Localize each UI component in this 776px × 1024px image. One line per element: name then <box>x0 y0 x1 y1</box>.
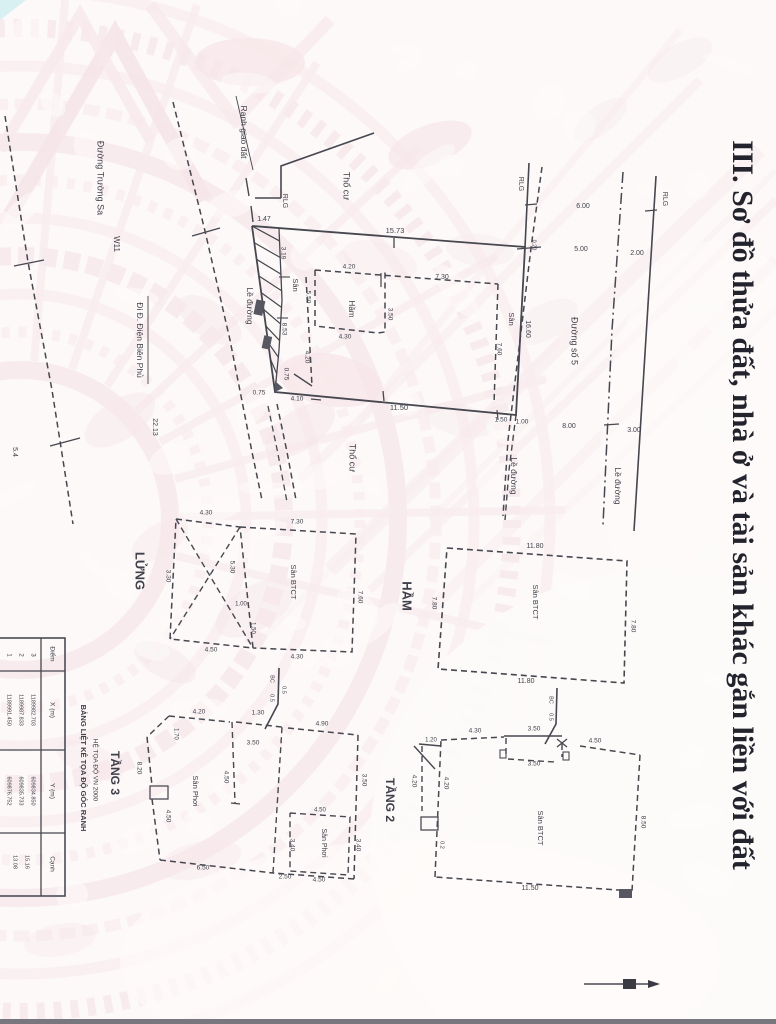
svg-text:Đường Trường Sa: Đường Trường Sa <box>96 141 106 215</box>
svg-text:RLG: RLG <box>661 192 668 206</box>
svg-text:4.50: 4.50 <box>222 771 229 784</box>
svg-text:1.00: 1.00 <box>235 602 247 608</box>
svg-text:X (m): X (m) <box>48 702 55 718</box>
svg-text:1.00: 1.00 <box>516 419 529 426</box>
svg-text:3.40: 3.40 <box>288 839 295 852</box>
svg-text:609876.752: 609876.752 <box>6 776 12 805</box>
svg-text:0.5: 0.5 <box>269 694 275 702</box>
svg-text:1189987.833: 1189987.833 <box>18 694 24 726</box>
svg-text:TẦNG 2: TẦNG 2 <box>383 778 398 822</box>
svg-text:16.60: 16.60 <box>524 320 531 338</box>
svg-text:8.20: 8.20 <box>135 762 142 775</box>
svg-text:4.30: 4.30 <box>469 728 482 735</box>
svg-text:Đi Đ. Điện Biên Phủ: Đi Đ. Điện Biên Phủ <box>135 302 145 378</box>
svg-text:4.30: 4.30 <box>200 510 213 517</box>
svg-text:3.40: 3.40 <box>354 839 361 852</box>
svg-text:11.50: 11.50 <box>522 885 539 892</box>
svg-text:Sân: Sân <box>507 312 516 325</box>
svg-text:3.30: 3.30 <box>164 570 171 583</box>
svg-text:7.80: 7.80 <box>629 620 636 633</box>
svg-text:8.53: 8.53 <box>280 323 287 336</box>
svg-text:1.47: 1.47 <box>257 216 271 223</box>
svg-text:4.50: 4.50 <box>314 808 326 814</box>
svg-text:Sân BTCT: Sân BTCT <box>531 584 540 619</box>
svg-text:Đường số 5: Đường số 5 <box>570 317 580 365</box>
svg-text:W11: W11 <box>112 236 121 252</box>
svg-text:HỆ TỌA ĐỘ VN 2000: HỆ TỌA ĐỘ VN 2000 <box>91 739 100 802</box>
svg-text:HẦM: HẦM <box>400 581 415 611</box>
svg-text:4.10: 4.10 <box>291 396 304 403</box>
svg-text:7.80: 7.80 <box>430 597 437 610</box>
svg-text:Thổ cư: Thổ cư <box>342 172 352 201</box>
svg-text:0.5: 0.5 <box>281 686 287 694</box>
svg-text:7.30: 7.30 <box>291 519 304 526</box>
svg-text:2.50: 2.50 <box>279 874 292 881</box>
svg-text:Lề đường: Lề đường <box>509 457 519 495</box>
svg-text:7.60: 7.60 <box>495 343 502 356</box>
svg-text:Sân: Sân <box>291 278 300 291</box>
svg-text:8.00: 8.00 <box>562 423 576 430</box>
svg-text:Thổ cư: Thổ cư <box>348 444 358 473</box>
svg-text:6.50: 6.50 <box>197 865 210 872</box>
svg-text:Sân BTCT: Sân BTCT <box>536 810 545 845</box>
svg-text:8.50: 8.50 <box>639 816 646 829</box>
svg-text:Sân Phơi: Sân Phơi <box>191 775 200 807</box>
svg-text:2.00: 2.00 <box>630 250 644 257</box>
svg-text:6.00: 6.00 <box>576 203 590 210</box>
svg-text:Sân Phơi: Sân Phơi <box>320 828 327 858</box>
svg-text:III. Sơ đồ thửa đất, nhà ở và: III. Sơ đồ thửa đất, nhà ở và tài sản kh… <box>726 140 759 870</box>
svg-text:609835.733: 609835.733 <box>18 776 24 805</box>
svg-text:11.50: 11.50 <box>390 403 408 412</box>
svg-text:11.80: 11.80 <box>518 678 535 685</box>
svg-text:22.13: 22.13 <box>151 418 158 436</box>
svg-text:15.73: 15.73 <box>386 226 405 235</box>
svg-text:LỬNG: LỬNG <box>133 552 148 590</box>
svg-text:4.50: 4.50 <box>313 877 326 884</box>
svg-text:4.50: 4.50 <box>205 647 218 654</box>
svg-text:0.75: 0.75 <box>253 390 266 397</box>
svg-text:Cạnh: Cạnh <box>48 856 55 872</box>
svg-text:3.00: 3.00 <box>627 427 641 434</box>
svg-text:4.30: 4.30 <box>291 654 304 661</box>
svg-text:BC: BC <box>269 675 275 683</box>
svg-text:0.2: 0.2 <box>439 841 445 849</box>
svg-text:4.20: 4.20 <box>193 709 206 716</box>
svg-text:1189982.703: 1189982.703 <box>30 694 36 726</box>
svg-text:Lề đường: Lề đường <box>613 467 623 505</box>
svg-text:15.16: 15.16 <box>24 855 30 869</box>
svg-text:5.00: 5.00 <box>574 246 588 253</box>
svg-text:3.50: 3.50 <box>528 761 541 768</box>
svg-text:4.20: 4.20 <box>303 351 310 364</box>
svg-text:4.50: 4.50 <box>164 810 171 823</box>
svg-text:RLG: RLG <box>281 194 288 208</box>
svg-text:4.20: 4.20 <box>410 775 417 788</box>
svg-text:1189991.450: 1189991.450 <box>6 694 12 726</box>
svg-text:Lề đường: Lề đường <box>245 287 255 325</box>
svg-text:Hầm: Hầm <box>347 301 356 318</box>
svg-text:1.20: 1.20 <box>425 738 437 744</box>
svg-text:609834.850: 609834.850 <box>30 776 36 805</box>
svg-text:13.08: 13.08 <box>12 855 18 869</box>
svg-text:7.30: 7.30 <box>435 274 449 281</box>
svg-text:5.4: 5.4 <box>11 447 18 457</box>
svg-text:TẦNG 3: TẦNG 3 <box>108 751 123 795</box>
svg-text:0.75: 0.75 <box>282 368 289 381</box>
svg-text:3.50: 3.50 <box>247 740 260 747</box>
svg-text:Y (m): Y (m) <box>48 783 55 799</box>
svg-text:5.30: 5.30 <box>228 561 235 574</box>
svg-text:1.50: 1.50 <box>495 417 508 424</box>
svg-text:3.19: 3.19 <box>279 247 286 260</box>
svg-text:3.50: 3.50 <box>360 774 367 787</box>
svg-text:7.60: 7.60 <box>356 591 363 604</box>
svg-text:4.90: 4.90 <box>316 721 329 728</box>
svg-text:4.20: 4.20 <box>442 777 449 790</box>
svg-text:1.50: 1.50 <box>249 622 255 634</box>
svg-text:4.50: 4.50 <box>589 738 602 745</box>
svg-text:Điểm: Điểm <box>48 646 56 661</box>
svg-text:1.30: 1.30 <box>252 710 265 717</box>
svg-text:3.50: 3.50 <box>386 308 393 321</box>
svg-text:1.70: 1.70 <box>172 728 178 740</box>
svg-text:BẢNG LIỆT KÊ TỌA ĐỘ GÓC RANH: BẢNG LIỆT KÊ TỌA ĐỘ GÓC RANH <box>79 705 88 832</box>
svg-text:4.20: 4.20 <box>343 264 356 271</box>
svg-text:BC: BC <box>548 696 554 704</box>
svg-text:3.50: 3.50 <box>528 726 541 733</box>
svg-text:4.30: 4.30 <box>339 334 352 341</box>
svg-text:0.5: 0.5 <box>548 713 554 721</box>
svg-text:RLG: RLG <box>517 177 524 191</box>
svg-text:11.80: 11.80 <box>527 543 544 550</box>
svg-text:Sân BTCT: Sân BTCT <box>289 564 298 599</box>
